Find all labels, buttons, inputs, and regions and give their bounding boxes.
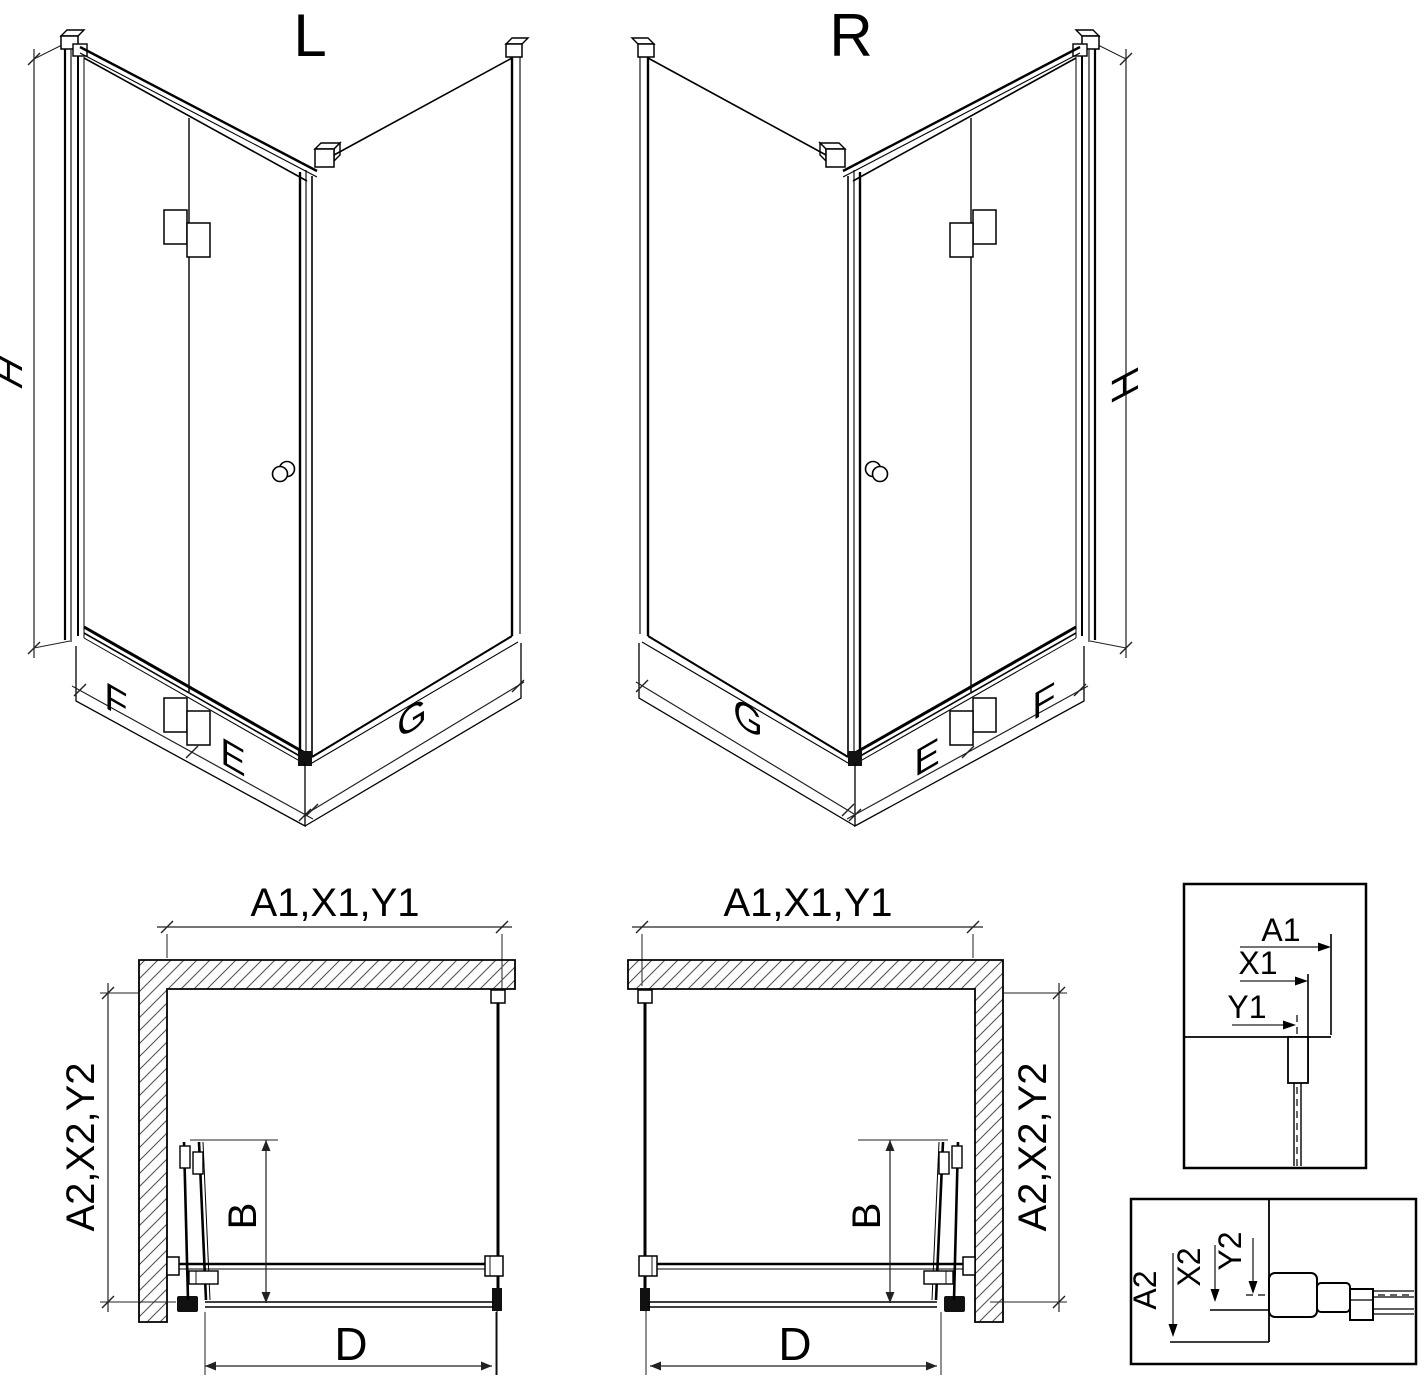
depth-dim-label-left: A2,X2,Y2 (59, 1062, 103, 1231)
g-dim-label-right: G (733, 688, 763, 748)
f-dim-label-right: F (1032, 673, 1055, 729)
top-support-bar-right (843, 47, 1080, 177)
depth-detail-inset: A2 X2 Y2 (1127, 1199, 1416, 1364)
door-knob-icon (273, 462, 295, 482)
hinge-bottom-icon-r (950, 698, 996, 745)
x2-label: X2 (1171, 1247, 1207, 1286)
iso-view-left: L H (0, 2, 528, 826)
h-dim-label-left: H (0, 346, 30, 396)
door-knob-icon-r (866, 462, 888, 482)
wall-bracket-top (491, 990, 505, 1003)
d-dim-label-right: D (778, 1318, 811, 1370)
x1-label: X1 (1238, 945, 1277, 981)
height-dimension-right: H (1090, 41, 1146, 658)
wall-section-left (139, 960, 515, 1322)
width-detail-inset: A1 X1 Y1 (1184, 884, 1366, 1168)
hinge-bottom-icon (164, 698, 210, 745)
plan-view-right: A1,X1,Y1 A2,X2,Y2 (628, 881, 1067, 1375)
d-dim-label-left: D (334, 1318, 367, 1370)
shower-enclosure-technical-drawing: L H (0, 0, 1426, 1397)
folded-door-plan-left (180, 1142, 218, 1300)
hinge-top-icon (164, 210, 210, 257)
hinge-top-icon-r (950, 210, 996, 257)
g-dim-label-left: G (397, 688, 427, 748)
wall-section-right (628, 960, 1003, 1322)
y2-label: Y2 (1212, 1231, 1248, 1270)
plan-view-left: A1,X1,Y1 A2,X2,Y2 (59, 881, 515, 1375)
side-dimension-left: G (306, 680, 524, 816)
iso-view-right: R H (632, 2, 1146, 826)
top-support-bar-left (80, 47, 317, 177)
width-dim-label-left: A1,X1,Y1 (250, 881, 419, 925)
a2-label: A2 (1127, 1270, 1163, 1309)
variant-label-r: R (829, 2, 872, 69)
f-dim-label-left: F (104, 673, 127, 729)
corner-bracket (315, 149, 334, 167)
opening-dimension-left: D (205, 1312, 496, 1375)
wall-profile-section (1288, 1037, 1308, 1083)
height-dimension-left: H (0, 41, 70, 658)
b-dim-label-left: B (221, 1203, 265, 1230)
a1-label: A1 (1261, 912, 1300, 948)
y1-label: Y1 (1227, 989, 1266, 1025)
side-dimension-right: G (636, 680, 854, 816)
depth-dim-label-right: A2,X2,Y2 (1011, 1062, 1055, 1231)
b-dim-label-right: B (845, 1203, 889, 1230)
h-dim-label-right: H (1103, 360, 1146, 410)
width-dim-label-right: A1,X1,Y1 (723, 881, 892, 925)
corner-bracket-r (826, 149, 845, 167)
e-dim-label-right: E (914, 728, 939, 785)
drawing-canvas: L H (0, 0, 1426, 1397)
wall-bracket-top-r (638, 990, 652, 1003)
variant-label-l: L (293, 2, 326, 69)
e-dim-label-left: E (220, 728, 245, 785)
folded-door-plan-right (924, 1142, 962, 1300)
opening-dimension-right: D (646, 1312, 941, 1375)
